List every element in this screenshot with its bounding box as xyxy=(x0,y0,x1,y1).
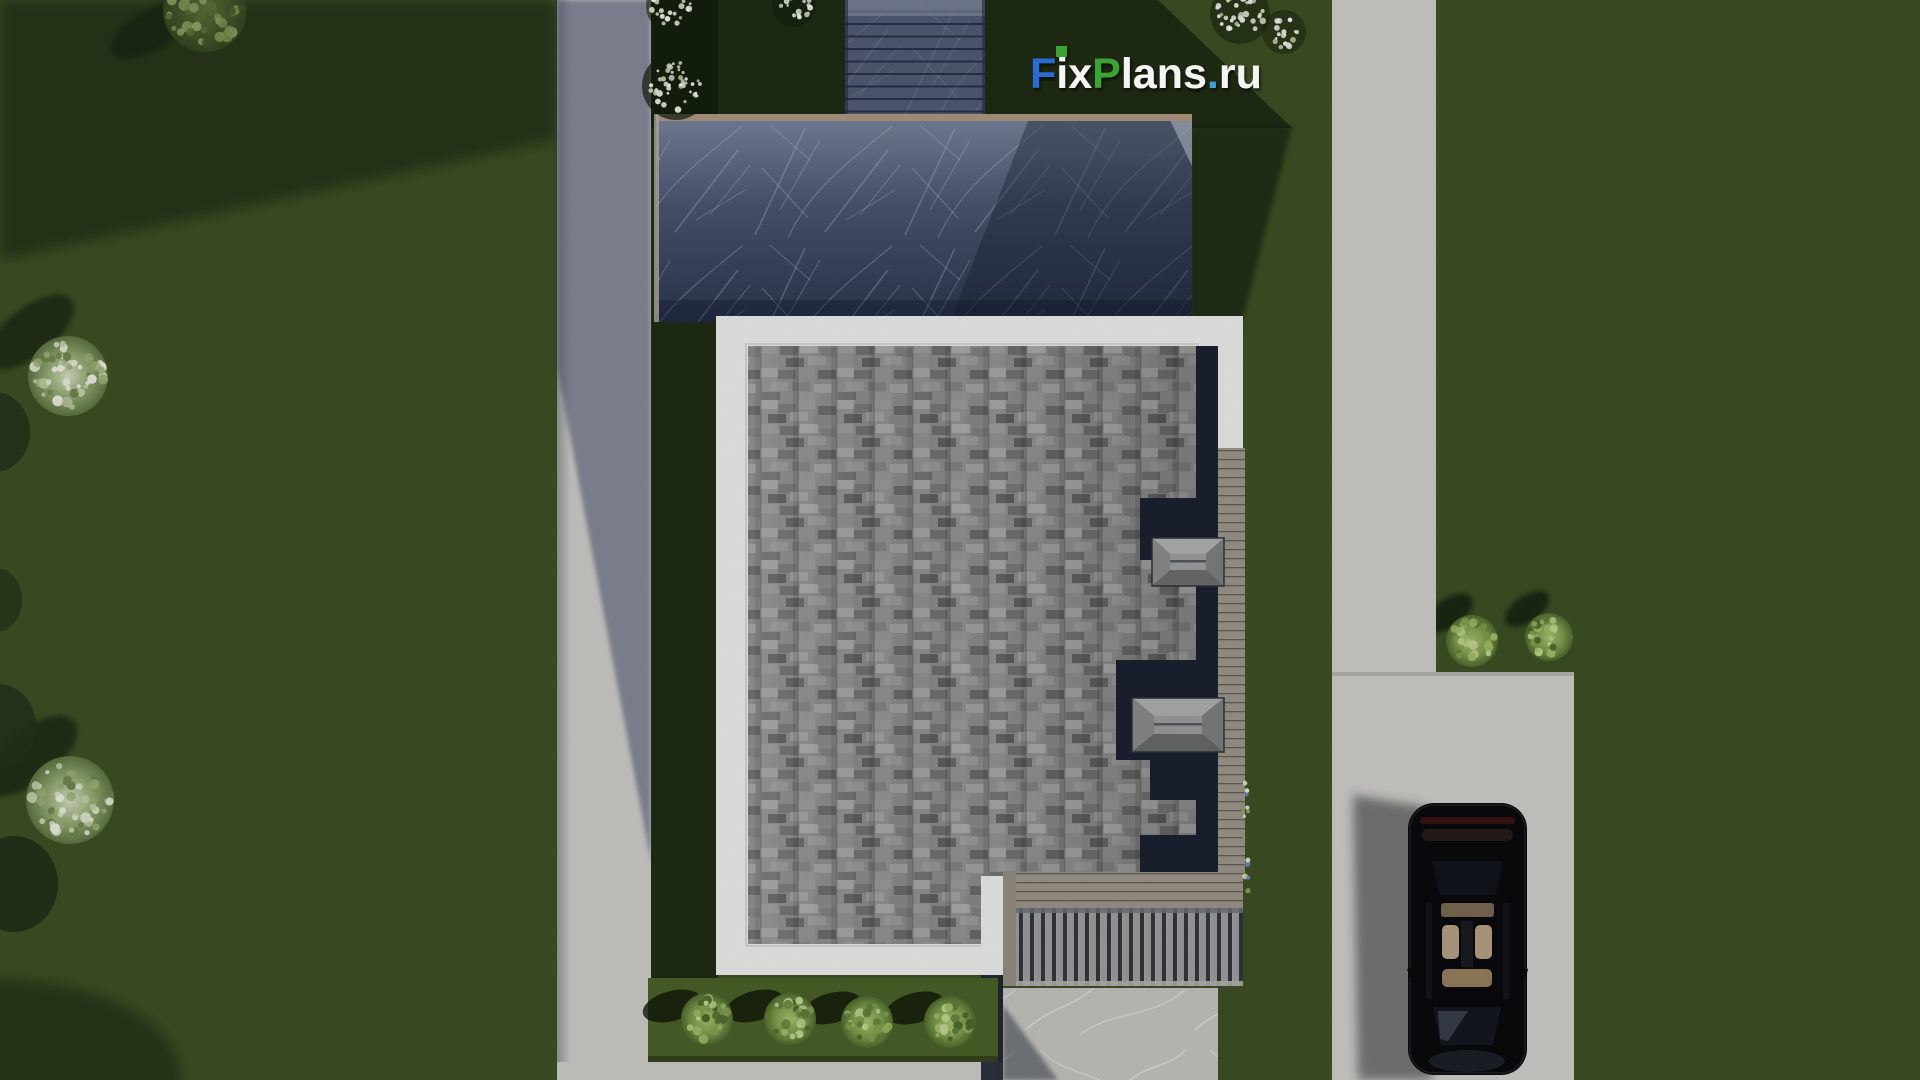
logo-p: P xyxy=(1092,50,1121,98)
logo-lans: lans xyxy=(1121,50,1207,98)
logo-f: F xyxy=(1030,50,1056,98)
logo-ru: ru xyxy=(1219,50,1262,98)
aerial-site-plan-render: FixPlans.ru xyxy=(0,0,1920,1080)
watermark-text: FixPlans.ru xyxy=(1030,50,1262,98)
logo-ix: ix xyxy=(1056,50,1092,98)
site-plan-canvas: FixPlans.ru xyxy=(0,0,1920,1080)
watermark: FixPlans.ru xyxy=(1030,46,1262,98)
film-grain xyxy=(0,0,1920,1080)
logo-i-dot xyxy=(1056,46,1067,57)
logo-dot: . xyxy=(1207,50,1219,98)
